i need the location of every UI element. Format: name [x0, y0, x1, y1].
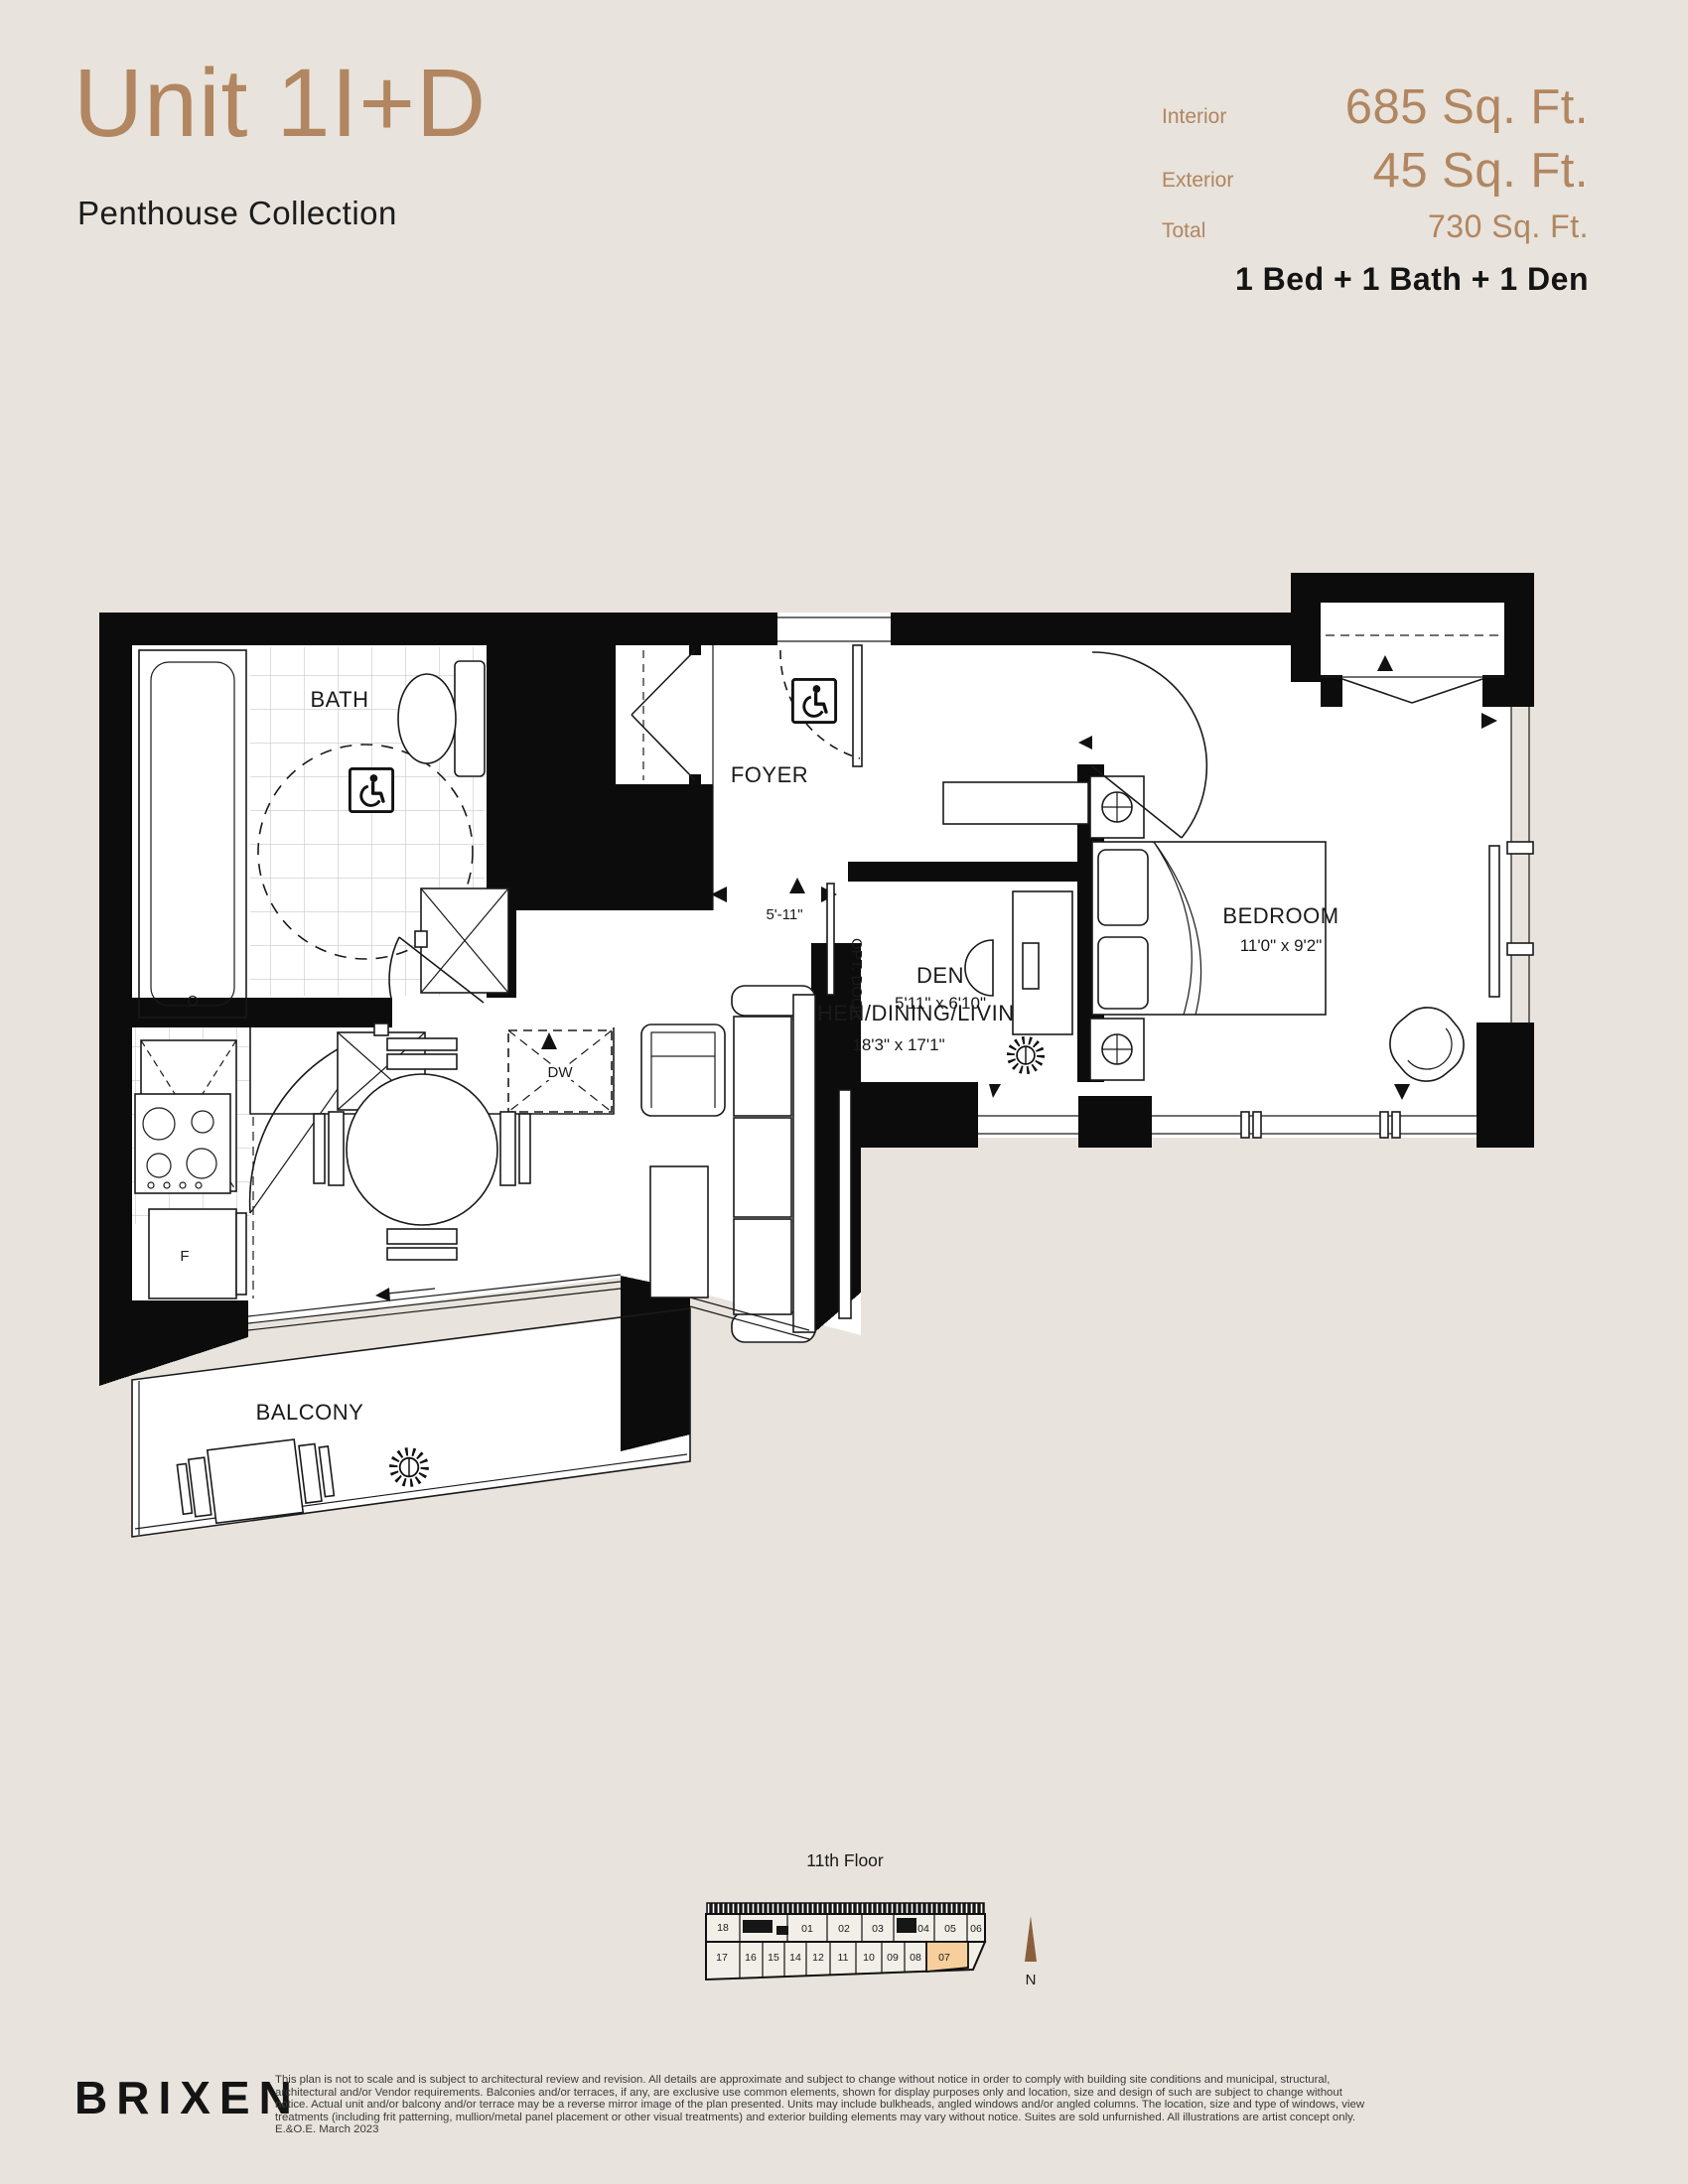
kp-unit-03: 03 [872, 1923, 884, 1935]
kp-unit-02: 02 [838, 1923, 850, 1935]
den-desk [1013, 891, 1072, 1034]
shower [415, 888, 508, 993]
disclaimer-line-1: This plan is not to scale and is subject… [275, 2074, 1556, 2087]
bedroom-closet-floor [1321, 603, 1504, 677]
kp-unit-10: 10 [863, 1952, 875, 1964]
keyplan-floor-label: 11th Floor [806, 1850, 884, 1870]
bed [1092, 842, 1326, 1015]
faucet [374, 1024, 388, 1035]
fridge-label: F [180, 1248, 189, 1265]
kp-unit-17: 17 [716, 1952, 728, 1964]
shower-valve [415, 931, 427, 947]
balcony-label: BALCONY [256, 1400, 364, 1425]
disclaimer-line-5: E.&O.E. March 2023 [275, 2123, 1556, 2136]
floorplan-drawing: BATH W/D [0, 0, 1688, 2184]
kp-unit-01: 01 [801, 1923, 813, 1935]
coffee-table [650, 1166, 708, 1297]
kp-unit-08: 08 [910, 1952, 921, 1964]
kp-unit-16: 16 [745, 1952, 757, 1964]
armchair [641, 1024, 725, 1116]
bedroom-dims-label: 11'0" x 9'2" [1240, 936, 1323, 955]
accessibility-icon-foyer [792, 679, 835, 722]
bath-label: BATH [310, 687, 368, 712]
kitchen-dims-label: 18'3" x 17'1" [852, 1035, 944, 1054]
den-opening-dim-label: 5'-11" [766, 906, 802, 923]
kp-unit-14: 14 [789, 1952, 801, 1964]
cooktop [135, 1094, 230, 1193]
nightstand-bottom [1090, 1019, 1144, 1080]
den-label: DEN [916, 963, 964, 988]
window-drape [1489, 846, 1499, 997]
kp-unit-05: 05 [944, 1923, 956, 1935]
den-monitor [1023, 943, 1039, 989]
foyer-bench [943, 782, 1088, 824]
north-arrow-icon [1025, 1916, 1037, 1962]
kp-unit-18: 18 [717, 1922, 729, 1934]
opt-door-wall [827, 884, 834, 995]
accessibility-icon-bath [350, 768, 392, 811]
disclaimer-line-2: architectural and/or Vendor requirements… [275, 2087, 1556, 2100]
dw-label: DW [548, 1064, 574, 1081]
tv-panel [839, 1090, 851, 1318]
dining-table [347, 1074, 497, 1225]
keyplan: 11th Floor 18 [706, 1850, 1037, 1988]
den-dims-label: 5'11" x 6'10" [895, 994, 986, 1013]
disclaimer-text: This plan is not to scale and is subject… [275, 2074, 1556, 2136]
north-label: N [1026, 1972, 1037, 1988]
kp-unit-09: 09 [887, 1952, 899, 1964]
kp-unit-04: 04 [917, 1923, 929, 1935]
keyplan-balcony-band [707, 1903, 984, 1914]
opt-door-label: OPT. DOOR [848, 938, 865, 1021]
floorplan-page: Unit 1I+D Penthouse Collection Interior … [0, 0, 1688, 2184]
kp-unit-07: 07 [938, 1952, 950, 1964]
disclaimer-line-3: notice. Actual unit and/or balcony and/o… [275, 2099, 1556, 2112]
north-arrow: N [1025, 1916, 1037, 1988]
brixen-logo: BRIXEN [74, 2071, 301, 2124]
fridge: F [149, 1209, 246, 1298]
foyer-label: FOYER [731, 762, 808, 787]
sofa [732, 986, 815, 1342]
disclaimer-line-4: treatments (including frit patterning, m… [275, 2112, 1556, 2124]
kp-unit-12: 12 [812, 1952, 824, 1964]
kp-unit-11: 11 [838, 1952, 849, 1964]
kp-unit-06: 06 [970, 1923, 982, 1935]
kp-unit-15: 15 [768, 1952, 779, 1964]
bedroom-label: BEDROOM [1222, 903, 1338, 928]
